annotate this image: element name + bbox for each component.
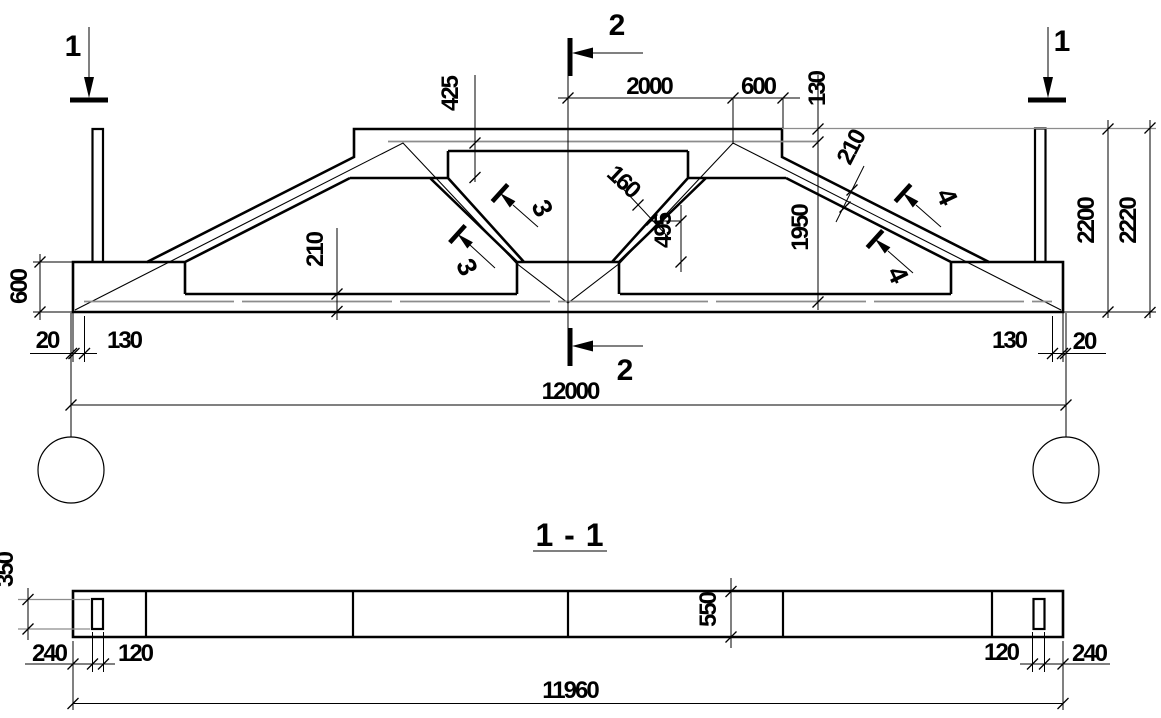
- dim-120-left: 120: [118, 640, 154, 667]
- left-post-hole: [92, 599, 103, 629]
- dim-120-right: 120: [984, 639, 1020, 666]
- left-grid-bubble: [38, 437, 104, 503]
- girder-technical-drawing: 1 1 2 2 3: [0, 0, 1161, 718]
- dim-2220: 2220: [1115, 197, 1142, 244]
- dim-right-20: 20: [1073, 328, 1097, 355]
- section-2-label-top: 2: [609, 9, 626, 42]
- drawing-sheet: 1 1 2 2 3: [0, 0, 1161, 718]
- left-arrow-icon: [572, 341, 593, 352]
- dim-chord-210: 210: [302, 231, 329, 267]
- section-4-label-upper: 4: [930, 184, 964, 210]
- section-1-label-right: 1: [1054, 25, 1071, 58]
- dim-top-600: 600: [741, 73, 777, 100]
- elevation-view: 1 1 2 2 3: [6, 9, 1156, 503]
- grid-axis-bubbles: [38, 437, 1099, 503]
- dim-right-130: 130: [992, 327, 1028, 354]
- dim-550: 550: [695, 591, 722, 627]
- dim-left-20: 20: [36, 327, 60, 354]
- dim-1950: 1950: [787, 204, 814, 251]
- section-1-1-view: 1 - 1 350 240 120 550 120 240 11960: [0, 517, 1110, 710]
- left-post: [93, 129, 104, 263]
- section-4-label-lower: 4: [881, 262, 915, 288]
- diagonal-arrow-icon: [458, 234, 473, 249]
- right-post: [1035, 129, 1046, 264]
- down-arrow-icon: [1043, 77, 1053, 98]
- elevation-dimension-texts: 2000 600 130 425 160 495 1950 210 210 60…: [6, 70, 1142, 405]
- dim-slope-210: 210: [832, 125, 872, 169]
- down-arrow-icon: [84, 77, 94, 98]
- dim-end-600: 600: [6, 268, 33, 304]
- elevation-dimension-ticks: [35, 93, 1156, 411]
- section-marker-1-left: 1: [65, 27, 108, 100]
- section-3-label-upper: 3: [525, 195, 559, 221]
- section-2-label-bottom: 2: [617, 354, 634, 387]
- dim-350: 350: [0, 551, 19, 587]
- section-title: 1 - 1: [535, 517, 604, 553]
- left-arrow-icon: [572, 48, 593, 59]
- dim-240-right: 240: [1072, 640, 1108, 667]
- dim-240-left: 240: [32, 640, 68, 667]
- right-post-hole: [1034, 599, 1045, 629]
- dim-11960: 11960: [542, 677, 599, 704]
- dim-160: 160: [601, 160, 646, 204]
- dim-span-12000: 12000: [542, 378, 600, 405]
- dim-top-2000: 2000: [626, 73, 673, 100]
- section-marker-3-upper: 3: [492, 185, 559, 228]
- dim-495: 495: [650, 212, 677, 248]
- dim-2200: 2200: [1073, 197, 1100, 244]
- dim-left-130: 130: [107, 327, 143, 354]
- right-grid-bubble: [1033, 437, 1099, 503]
- dim-cover-130: 130: [804, 70, 831, 106]
- section-marker-1-right: 1: [1028, 25, 1070, 100]
- section-3-label-lower: 3: [450, 254, 484, 280]
- section-1-label-left: 1: [65, 30, 82, 63]
- hole-extension-lines: [18, 600, 90, 630]
- section-dimension-texts: 350 240 120 550 120 240 11960: [0, 551, 1108, 704]
- dim-425: 425: [437, 75, 464, 111]
- section-marker-2-top: 2: [570, 9, 643, 76]
- beam-plan-joints: [146, 591, 992, 637]
